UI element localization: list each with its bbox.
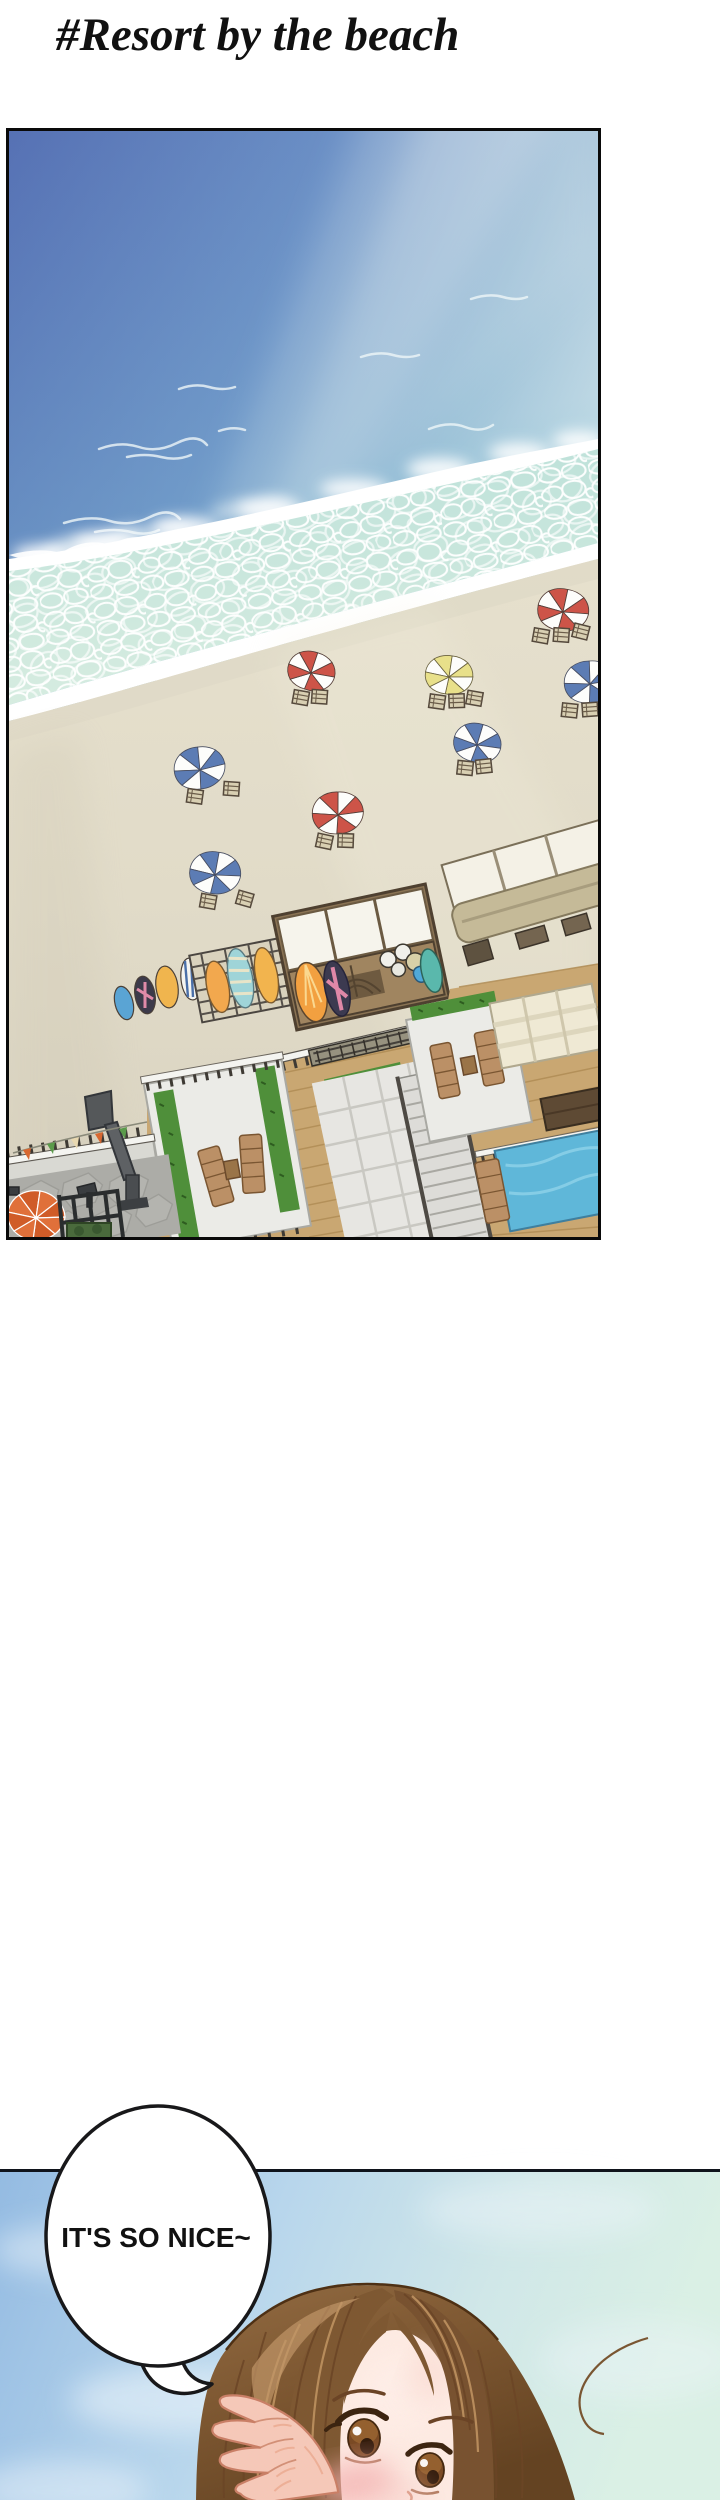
svg-text:IT'S SO NICE~: IT'S SO NICE~ — [61, 2222, 250, 2253]
